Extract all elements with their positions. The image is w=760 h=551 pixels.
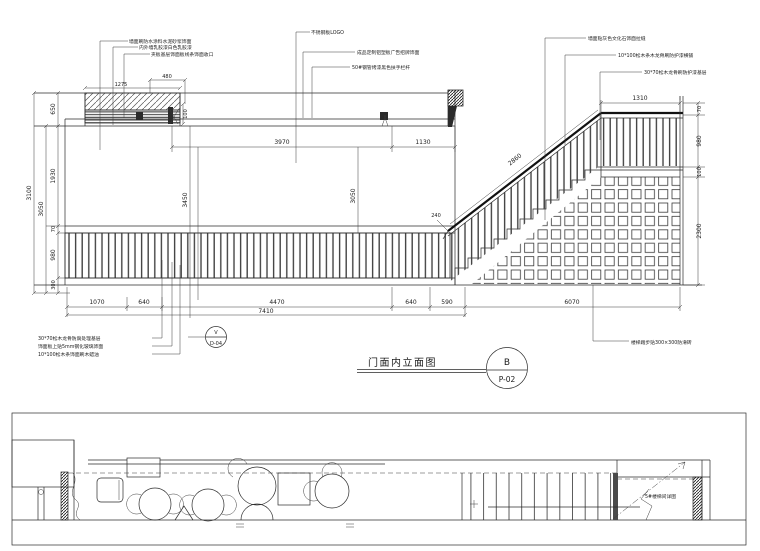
dim-3970: 3970 (274, 139, 289, 146)
dim-1930: 1930 (50, 168, 57, 183)
dim-70-right: 70 (697, 106, 703, 112)
annotation-top-mid-3: 50#钢管烤漆黑色扶手栏杆 (352, 64, 410, 71)
dim-1275: 1275 (115, 82, 128, 88)
dim-240: 240 (431, 213, 441, 219)
annotation-top-right-2: 10*100松木条木龙骨刷防护漆横铺 (618, 52, 693, 59)
annotation-top-right-3: 30*70松木龙骨刷防护漆基层 (644, 69, 707, 76)
dim-480: 480 (162, 74, 172, 80)
plan-walls (12, 440, 746, 520)
dim-1130: 1130 (415, 139, 430, 146)
title-ref-sheet: P-02 (499, 375, 516, 384)
dim-640-b: 640 (405, 299, 417, 306)
annotation-top-right-1: 墙面贴灰色文化石饰面拉缝 (588, 35, 646, 42)
plan-drawing: 5#楼梯间详图 (12, 413, 746, 545)
dim-100-right: 100 (697, 167, 703, 177)
annotation-bottom-left-2: 饰面板上贴5mm钢化玻璃饰面 (38, 343, 103, 350)
annotation-bottom-left-3: 10*100松木条饰面刷木蜡油 (38, 351, 99, 358)
dim-inner-height: 3050 (38, 201, 45, 216)
dim-300: 300 (51, 280, 57, 290)
bracket-details (168, 90, 463, 127)
drawing-title-block: 门面内立面图 B P-02 (357, 348, 528, 389)
dim-980-left: 980 (50, 249, 57, 261)
dim-1310: 1310 (632, 95, 647, 102)
cad-drawing-svg: 墙面刷防水涂料水泥砂浆饰面 内外墙乳胶漆白色乳胶漆 夹板基层饰面板线条饰面收口 … (0, 0, 760, 551)
annotation-top-left-1: 墙面刷防水涂料水泥砂浆饰面 (129, 38, 192, 45)
cad-sheet: 墙面刷防水涂料水泥砂浆饰面 内外墙乳胶漆白色乳胶漆 夹板基层饰面板线条饰面收口 … (0, 0, 760, 551)
detail-callout: V D-04 (206, 327, 227, 348)
title-ref-letter: B (504, 358, 510, 368)
dim-1070: 1070 (89, 299, 104, 306)
dim-7410: 7410 (258, 308, 273, 315)
timber-slat-band (65, 226, 455, 278)
plan-stair: 5#楼梯间详图 (462, 462, 685, 520)
annotation-top-left-2: 内外墙乳胶漆白色乳胶漆 (139, 44, 192, 51)
dim-650: 650 (50, 103, 57, 115)
dim-2860: 2860 (507, 152, 523, 167)
drawing-title: 门面内立面图 (368, 356, 437, 369)
annotation-top-left-3: 夹板基层饰面板线条饰面收口 (151, 51, 214, 58)
dim-2300: 2300 (696, 223, 703, 238)
detail-callout-letter: V (214, 330, 218, 336)
annotation-bottom-right-1: 楼梯踏步贴300×300防滑砖 (631, 339, 692, 346)
dim-6070: 6070 (564, 299, 579, 306)
annotation-top-mid-2: 成品定制铝塑板广告招牌饰面 (357, 49, 420, 56)
elevation-drawing: 墙面刷防水涂料水泥砂浆饰面 内外墙乳胶漆白色乳胶漆 夹板基层饰面板线条饰面收口 … (26, 29, 707, 389)
dim-640-a: 640 (138, 299, 150, 306)
dim-70-left: 70 (51, 226, 57, 232)
dim-4470: 4470 (269, 299, 284, 306)
dim-total-height: 3100 (26, 185, 33, 200)
plan-stair-note: 5#楼梯间详图 (645, 493, 676, 500)
annotation-top-mid-1: 不锈钢板LOGO (311, 29, 344, 36)
annotation-bottom-left-1: 30*70松木龙骨防腐处理基层 (38, 335, 101, 342)
plan-furniture (97, 458, 354, 527)
detail-callout-sheet: D-04 (210, 341, 222, 347)
dim-3450: 3450 (182, 192, 189, 207)
dim-590: 590 (441, 299, 453, 306)
signboard-section (85, 93, 180, 123)
dim-980-right: 980 (696, 135, 703, 147)
dim-100-bracket: 100 (183, 109, 189, 119)
dim-3050-mid: 3050 (350, 188, 357, 203)
